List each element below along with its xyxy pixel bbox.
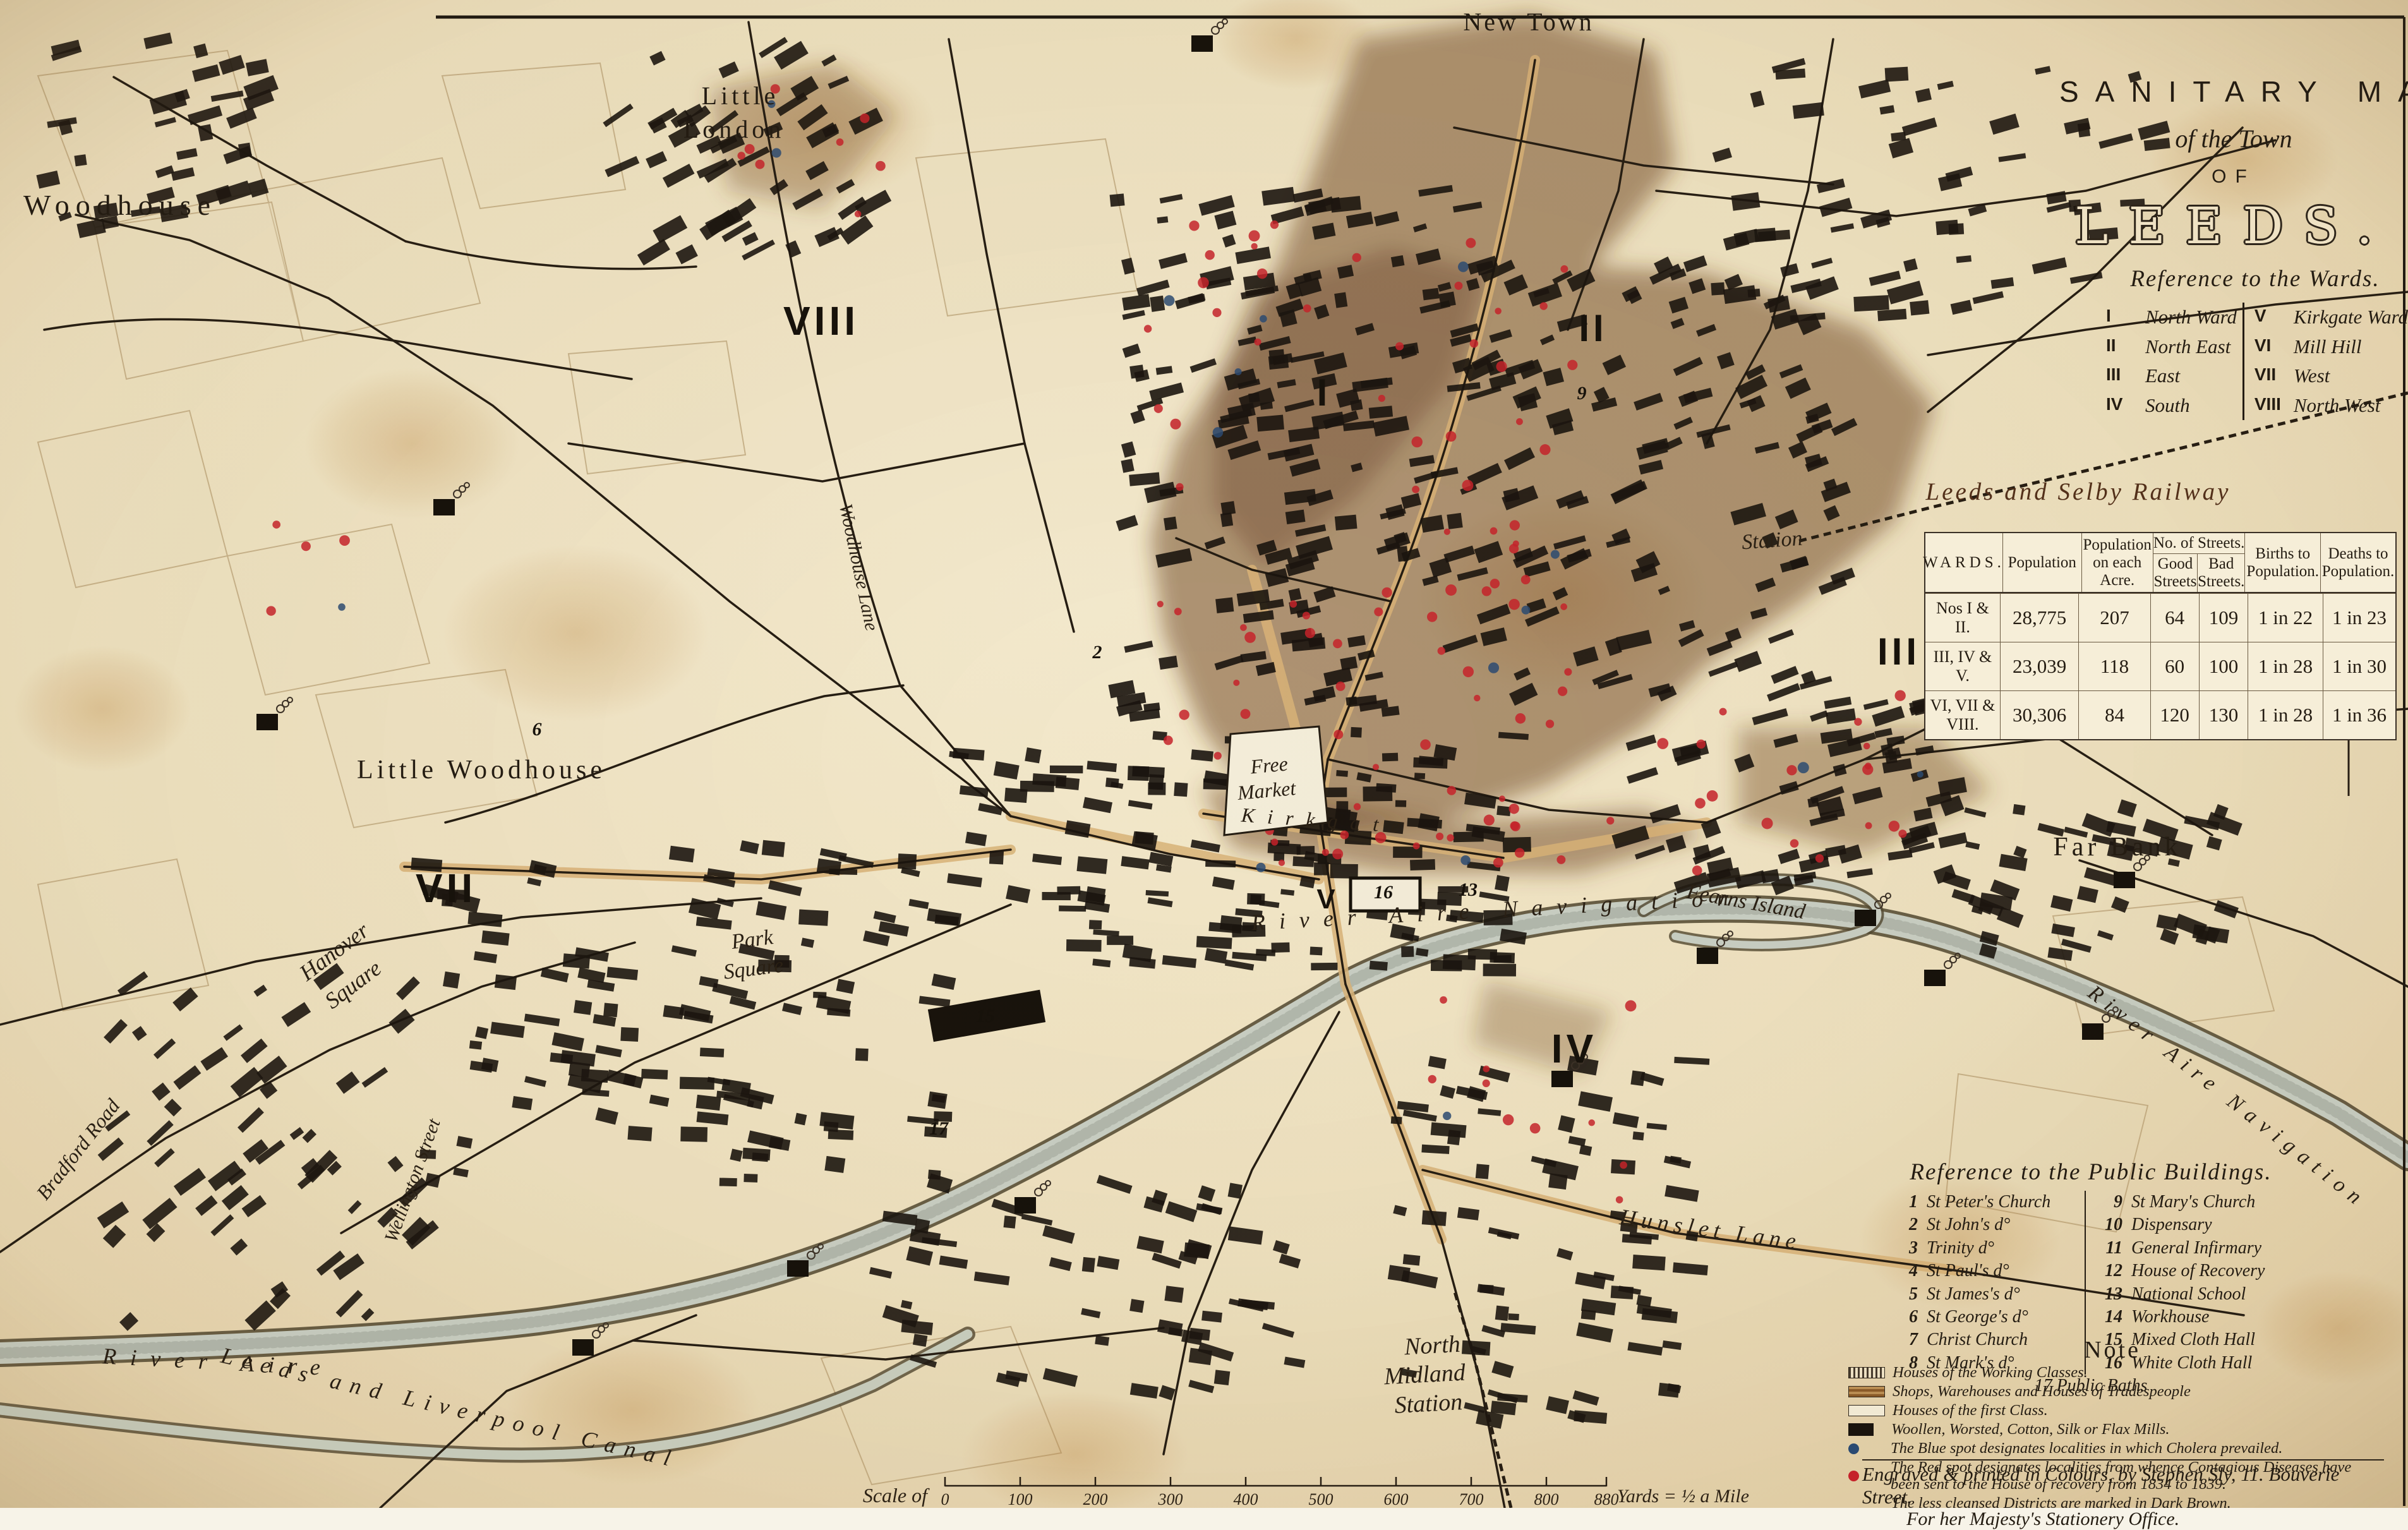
building-number: 3 — [1893, 1237, 1918, 1260]
map-label-ward-vii: VII — [416, 865, 476, 911]
col-header-births: Births to Population. — [2244, 533, 2320, 592]
building-ref-item: 2St John's d° — [1893, 1214, 2085, 1236]
building-number: 13 — [2097, 1283, 2122, 1306]
ward-ref-item: VIIWest — [2254, 361, 2408, 391]
key-text: Houses of the Working Classes. — [1893, 1364, 2088, 1382]
tradespeople-swatch-icon — [1848, 1386, 1885, 1397]
title-block: SANITARY MAP of the Town OF LEEDS. — [2059, 75, 2408, 255]
cell-deaths: 1 in 23 — [2323, 594, 2395, 642]
leeds-selby-railway-label: Leeds and Selby Railway — [1908, 478, 2249, 506]
building-ref-item: 12House of Recovery — [2097, 1260, 2289, 1282]
map-label-building-13: 13 — [1459, 879, 1478, 900]
wards-column-left: INorth Ward IINorth East IIIEast IVSouth — [2102, 303, 2242, 420]
map-label-free-market-1: Free — [1249, 752, 1289, 778]
cell-births: 1 in 22 — [2248, 594, 2323, 642]
ward-numeral: VI — [2254, 332, 2294, 362]
ward-name: South — [2145, 391, 2190, 421]
map-label-ward-ii: II — [1579, 307, 1607, 349]
key-item-tradespeople: Shops, Warehouses and Houses of Tradespe… — [1848, 1383, 2376, 1400]
wards-reference-list: INorth Ward IINorth East IIIEast IVSouth… — [2102, 303, 2408, 420]
credit-line-1: Engraved & printed in Colours, by Stephe… — [1862, 1463, 2384, 1509]
buildings-reference-heading: Reference to the Public Buildings. — [1893, 1159, 2289, 1186]
building-number: 9 — [2097, 1191, 2122, 1214]
key-item-blue-spot: The Blue spot designates localities in w… — [1848, 1440, 2376, 1457]
key-text: Shops, Warehouses and Houses of Tradespe… — [1893, 1383, 2191, 1400]
ward-name: North West — [2294, 391, 2381, 421]
col-header-bad-streets: Bad Streets. — [2197, 554, 2244, 592]
cell-per-acre: 84 — [2078, 691, 2150, 739]
col-header-good-streets: Good Streets — [2153, 554, 2197, 592]
map-label-ward-i: I — [1317, 371, 1332, 414]
key-item-mills: Woollen, Worsted, Cotton, Silk or Flax M… — [1848, 1421, 2376, 1438]
building-number: 12 — [2097, 1260, 2122, 1282]
key-text: Woollen, Worsted, Cotton, Silk or Flax M… — [1891, 1421, 2170, 1438]
key-item-first-class: Houses of the first Class. — [1848, 1402, 2376, 1419]
map-label-north-midland-station-3: Station — [1394, 1388, 1464, 1419]
table-row: VI, VII & VIII. 30,306 84 120 130 1 in 2… — [1925, 690, 2395, 739]
building-number: 14 — [2097, 1306, 2122, 1328]
cell-bad-streets: 109 — [2199, 594, 2248, 642]
cell-bad-streets: 130 — [2199, 691, 2248, 739]
building-ref-item: 10Dispensary — [2097, 1214, 2289, 1236]
col-header-streets: No. of Streets. — [2153, 533, 2244, 553]
building-number: 11 — [2097, 1237, 2122, 1260]
building-ref-item: 9St Mary's Church — [2097, 1191, 2289, 1214]
map-label-ward-iv: IV — [1551, 1026, 1597, 1071]
col-header-streets-group: No. of Streets. Good Streets Bad Streets… — [2153, 533, 2245, 592]
building-name: St Mary's Church — [2131, 1191, 2255, 1214]
key-text: Houses of the first Class. — [1893, 1402, 2048, 1419]
col-header-population: Population — [2002, 533, 2081, 592]
cell-good-streets: 64 — [2150, 594, 2199, 642]
ward-ref-item: VIIINorth West — [2254, 391, 2408, 421]
cell-deaths: 1 in 30 — [2323, 642, 2395, 690]
ward-ref-item: INorth Ward — [2106, 303, 2242, 332]
key-text: The Blue spot designates localities in w… — [1891, 1440, 2282, 1457]
building-number: 1 — [1893, 1191, 1918, 1214]
map-label-building-17: 17 — [929, 1118, 949, 1139]
ward-name: North East — [2145, 332, 2230, 362]
blue-spot-icon — [1848, 1443, 1859, 1454]
wards-reference-heading: Reference to the Wards. — [2102, 265, 2408, 292]
building-number: 4 — [1893, 1260, 1918, 1282]
cell-births: 1 in 28 — [2248, 691, 2323, 739]
wards-column-right: VKirkgate Ward VIMill Hill VIIWest VIIIN… — [2242, 303, 2408, 420]
ward-numeral: V — [2254, 303, 2294, 332]
engraver-credit: Engraved & printed in Colours, by Stephe… — [1862, 1459, 2384, 1530]
ward-name: Kirkgate Ward — [2294, 303, 2408, 332]
building-name: Workhouse — [2131, 1306, 2209, 1328]
map-label-ward-iii: III — [1877, 630, 1920, 673]
map-label-little-london-2: London — [683, 115, 785, 143]
map-label-little-woodhouse: Little Woodhouse — [357, 756, 606, 785]
key-item-working-classes: Houses of the Working Classes. — [1848, 1364, 2376, 1382]
ward-ref-item: VKirkgate Ward — [2254, 303, 2408, 332]
building-ref-item: 1St Peter's Church — [1893, 1191, 2085, 1214]
map-label-building-6: 6 — [533, 719, 542, 740]
map-title-town: LEEDS. — [2059, 196, 2408, 255]
ward-ref-item: IVSouth — [2106, 391, 2242, 421]
cell-wards: VI, VII & VIII. — [1925, 691, 2000, 739]
map-label-new-town: New Town — [1463, 8, 1594, 36]
cell-wards: III, IV & V. — [1925, 642, 2000, 690]
map-title: SANITARY MAP — [2059, 75, 2408, 109]
building-number: 6 — [1893, 1306, 1918, 1328]
building-ref-item: 14Workhouse — [2097, 1306, 2289, 1328]
building-number: 2 — [1893, 1214, 1918, 1236]
map-label-building-9: 9 — [1577, 383, 1587, 404]
working-classes-swatch-icon — [1848, 1367, 1885, 1378]
building-name: National School — [2131, 1283, 2246, 1306]
col-header-wards: WARDS. — [1925, 533, 2002, 592]
red-spot-icon — [1848, 1471, 1859, 1481]
building-name: St George's d° — [1927, 1306, 2028, 1328]
building-ref-item: 3Trinity d° — [1893, 1237, 2085, 1260]
cell-good-streets: 120 — [2150, 691, 2199, 739]
building-ref-item: 5St James's d° — [1893, 1283, 2085, 1306]
sanitary-map-of-leeds: 0100200300400500600700800880 Scale of Ya… — [0, 0, 2408, 1508]
map-label-building-15: 15 — [976, 1006, 995, 1027]
ward-numeral: IV — [2106, 391, 2145, 421]
ward-numeral: II — [2106, 332, 2145, 362]
cell-population: 23,039 — [2000, 642, 2079, 690]
ward-numeral: I — [2106, 303, 2145, 332]
building-ref-item: 11General Infirmary — [2097, 1237, 2289, 1260]
building-name: St Paul's d° — [1927, 1260, 2009, 1282]
building-name: St John's d° — [1927, 1214, 2010, 1236]
cell-births: 1 in 28 — [2248, 642, 2323, 690]
cell-wards: Nos I & II. — [1925, 594, 2000, 642]
building-name: House of Recovery — [2131, 1260, 2265, 1282]
map-label-woodhouse: Woodhouse — [23, 189, 217, 221]
cell-deaths: 1 in 36 — [2323, 691, 2395, 739]
stats-table-header: WARDS. Population Population on each Acr… — [1925, 533, 2395, 593]
cell-bad-streets: 100 — [2199, 642, 2248, 690]
building-name: St James's d° — [1927, 1283, 2020, 1306]
col-header-deaths: Deaths to Population. — [2320, 533, 2395, 592]
building-name: Dispensary — [2131, 1214, 2212, 1236]
cell-population: 28,775 — [2000, 594, 2079, 642]
col-header-per-acre: Population on each Acre. — [2081, 533, 2153, 592]
map-label-far-bank: Far Bank — [2053, 833, 2181, 862]
table-row: III, IV & V. 23,039 118 60 100 1 in 28 1… — [1925, 642, 2395, 690]
mill-swatch-icon — [1848, 1423, 1874, 1436]
map-label-ward-viii: VIII — [783, 298, 859, 344]
col-header-streets-split: Good Streets Bad Streets. — [2153, 553, 2245, 592]
building-ref-item: 6St George's d° — [1893, 1306, 2085, 1328]
building-number: 5 — [1893, 1283, 1918, 1306]
map-label-north-midland-station-2: Midland — [1383, 1359, 1467, 1390]
ward-statistics-table: WARDS. Population Population on each Acr… — [1924, 532, 2397, 740]
ward-ref-item: IINorth East — [2106, 332, 2242, 362]
map-label-north-midland-station-1: North — [1403, 1331, 1461, 1361]
building-ref-item: 4St Paul's d° — [1893, 1260, 2085, 1282]
ward-numeral: VIII — [2254, 391, 2294, 421]
building-name: St Peter's Church — [1927, 1191, 2050, 1214]
map-subtitle-1: of the Town — [2059, 124, 2408, 154]
note-heading: Note — [1848, 1338, 2376, 1362]
first-class-swatch-icon — [1848, 1405, 1885, 1416]
wards-reference: Reference to the Wards. INorth Ward IINo… — [2102, 265, 2408, 420]
building-ref-item: 13National School — [2097, 1283, 2289, 1306]
map-subtitle-2: OF — [2059, 166, 2408, 188]
building-name: Trinity d° — [1927, 1237, 1994, 1260]
ward-name: West — [2294, 361, 2330, 391]
map-label-building-2: 2 — [1092, 642, 1102, 663]
table-row: Nos I & II. 28,775 207 64 109 1 in 22 1 … — [1925, 593, 2395, 642]
credit-line-2: For her Majesty's Stationery Office. — [1906, 1509, 2384, 1530]
ward-ref-item: VIMill Hill — [2254, 332, 2408, 362]
ward-name: Mill Hill — [2294, 332, 2362, 362]
map-label-little-london-1: Little — [702, 81, 780, 110]
ward-name: East — [2145, 361, 2180, 391]
cell-population: 30,306 — [2000, 691, 2079, 739]
cell-per-acre: 118 — [2078, 642, 2150, 690]
ward-name: North Ward — [2145, 303, 2237, 332]
ward-numeral: VII — [2254, 361, 2294, 391]
ward-ref-item: IIIEast — [2106, 361, 2242, 391]
cell-good-streets: 60 — [2150, 642, 2199, 690]
building-name: General Infirmary — [2131, 1237, 2261, 1260]
ward-numeral: III — [2106, 361, 2145, 391]
map-label-station: Station — [1741, 527, 1803, 555]
map-label-building-16: 16 — [1374, 882, 1393, 903]
building-number: 10 — [2097, 1214, 2122, 1236]
cell-per-acre: 207 — [2078, 594, 2150, 642]
